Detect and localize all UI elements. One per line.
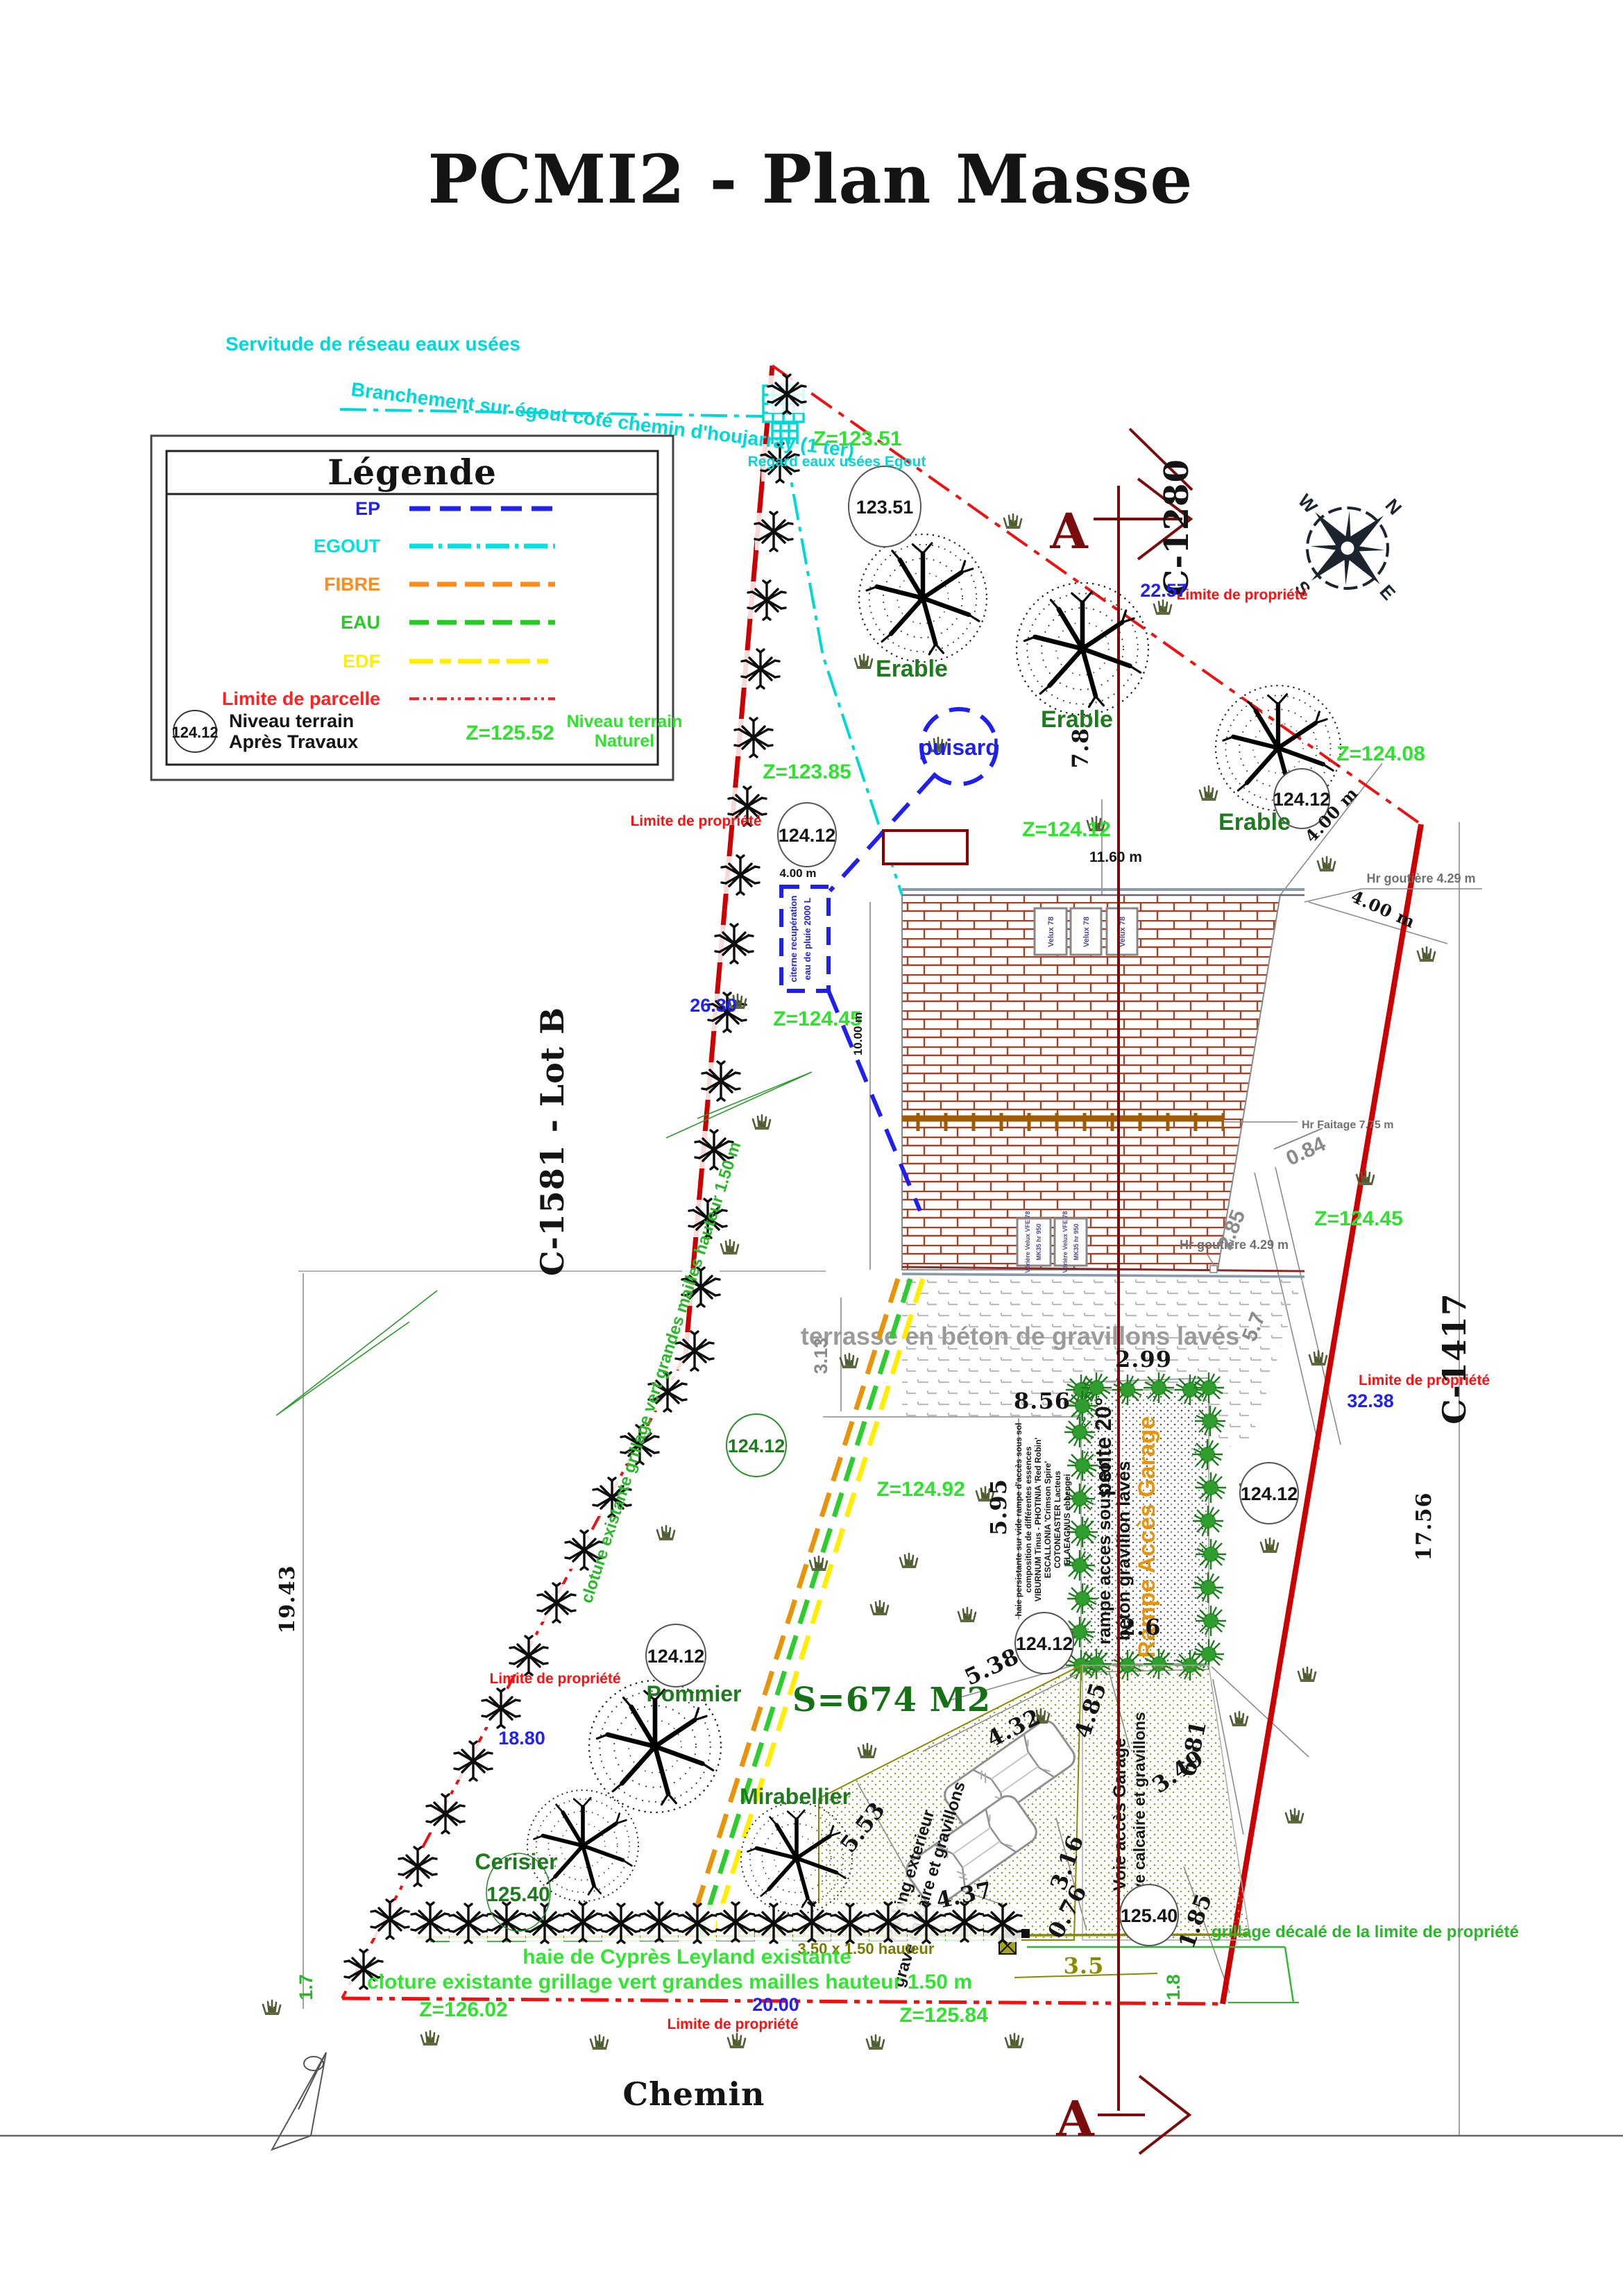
citerne-label-2: eau de pluie 2000 L: [802, 897, 813, 980]
dim-2-6: 2.6: [1121, 1614, 1162, 1640]
annex-rect: [883, 831, 967, 864]
limite-bottom: Limite de propriété: [667, 2016, 798, 2032]
page-title: PCMI2 - Plan Masse: [428, 140, 1193, 219]
regard-label: Regard eaux usées Egout: [748, 454, 926, 470]
z-124-92: Z=124.92: [876, 1478, 965, 1501]
z-124-08: Z=124.08: [1336, 742, 1425, 765]
dim-3-5: 3.5: [1064, 1953, 1105, 1979]
niveau-123-51: 123.51: [856, 497, 914, 518]
legend-niveau-l2: Après Travaux: [229, 731, 358, 752]
niveau-124-12: 124.12: [1016, 1633, 1073, 1654]
niveau-124-12-green: 124.12: [728, 1436, 785, 1456]
legend: Légende EP EGOUT FIBRE EAU EDF Limite de…: [151, 436, 682, 780]
compass-w: W: [1294, 491, 1322, 518]
legend-label: EP: [355, 498, 380, 519]
dim-4-00-a: 4.00 m: [780, 867, 817, 880]
dim-1-8: 1.8: [1163, 1974, 1184, 2000]
velux-label: Velux 78: [1082, 917, 1091, 947]
terrasse-label: terrasse en béton de gravillons lavés: [801, 1322, 1239, 1350]
erable-label-1: Erable: [876, 656, 948, 682]
compass-e: E: [1375, 581, 1399, 604]
pommier-label: Pommier: [647, 1681, 742, 1706]
hr-goutiere-top: Hr goutière 4.29 m: [1366, 871, 1475, 885]
grillage-decale-label: grillage décalé de la limite de propriét…: [1212, 1923, 1519, 1941]
haie-note-line: ELAEAGNUS ebbengei: [1062, 1474, 1072, 1565]
legend-label: Limite de parcelle: [222, 688, 380, 709]
dim-10-00: 10.00 m: [851, 1012, 865, 1055]
niveau-125-40-green: 125.40: [486, 1883, 550, 1906]
lot-c1280: C-1280: [1157, 459, 1196, 596]
dim-11-60: 11.60 m: [1089, 849, 1142, 865]
section-marker-top: A: [1049, 502, 1089, 560]
haie-note-line: VIBURNUM Tinus - PHOTINIA 'Red Robin': [1033, 1438, 1043, 1602]
dim-19-43: 19.43: [275, 1565, 300, 1634]
chemin-label: Chemin: [623, 2075, 765, 2113]
hr-faitage-label: Hr Faitage 7.75 m: [1302, 1119, 1394, 1131]
ridge-band: [902, 1113, 1224, 1131]
velux-label: Velux 78: [1047, 917, 1055, 947]
velux-windows: Velux 78 Velux 78 Velux 78: [1035, 908, 1137, 955]
dim-22-57: 22.57: [1140, 580, 1187, 601]
verriere-label: Vérière Velux VFE 78: [1024, 1211, 1031, 1273]
dim-17-56: 17.56: [1412, 1493, 1436, 1561]
mirabellier-label: Mirabellier: [740, 1784, 851, 1809]
dim-1-7: 1.7: [296, 1974, 316, 2000]
legend-naturel-l1: Niveau terrain: [567, 712, 683, 731]
erable-label-3: Erable: [1218, 809, 1291, 835]
goutiere-corner-marker: [1210, 1266, 1217, 1273]
rampe-label-1: rampe acces sous sol: [1094, 1457, 1114, 1644]
dim-5-38: 5.38: [960, 1642, 1023, 1690]
dim-2-99: 2.99: [1115, 1346, 1172, 1372]
niveau-124-12: 124.12: [779, 825, 836, 846]
z-125-84: Z=125.84: [899, 2004, 988, 2027]
z-126-02: Z=126.02: [419, 1998, 508, 2021]
z-124-12: Z=124.12: [1022, 818, 1111, 841]
site-plan: PCMI2 - Plan Masse Légende EP EGOUT FIBR…: [0, 0, 1623, 2296]
dim-5-95: 5.95: [985, 1479, 1012, 1536]
legend-niveau-value: 124.12: [171, 724, 218, 741]
niveau-125-40: 125.40: [1121, 1905, 1178, 1926]
haie-note-line: composition de différentes essences: [1023, 1446, 1033, 1592]
limite-mid-left: Limite de propriété: [489, 1671, 620, 1687]
z-124-45-left: Z=124.45: [773, 1007, 862, 1030]
limite-upper-left: Limite de propriété: [630, 813, 761, 829]
verriere-label: MK35 hr 950: [1035, 1223, 1042, 1260]
dim-18-80: 18.80: [498, 1728, 545, 1749]
compass: N E S W: [1249, 449, 1445, 645]
verriere-label: MK35 hr 950: [1073, 1223, 1080, 1260]
legend-label: EAU: [341, 612, 380, 633]
cloture-bottom-label: cloture existante grillage vert grandes …: [367, 1971, 972, 1993]
surface-label: S=674 M2: [792, 1681, 991, 1719]
section-marker-bottom: A: [1055, 2090, 1095, 2148]
legend-naturel-l2: Naturel: [595, 731, 654, 751]
dim-3-13: 3.13: [810, 1338, 831, 1375]
compass-n: N: [1381, 495, 1405, 519]
haie-note-line: COTONEASTER Lacteus: [1053, 1470, 1062, 1568]
dim-7-8: 7.8: [1067, 728, 1094, 769]
z-123-51: Z=123.51: [813, 427, 902, 450]
niveau-124-12: 124.12: [1273, 789, 1331, 810]
haie-persistante-note: haie persistante sur vide rampe d'accès …: [1014, 1423, 1072, 1617]
erable-tree-2: [1017, 583, 1148, 715]
haie-cypres-label: haie de Cyprès Leyland existante: [522, 1946, 851, 1968]
servitude-label: Servitude de réseau eaux usées: [226, 333, 520, 355]
dim-8-56: 8.56: [1014, 1388, 1071, 1414]
lot-c1417: C-1417: [1436, 1293, 1473, 1425]
dim-26-30: 26.30: [690, 995, 737, 1016]
legend-label: EGOUT: [314, 536, 381, 556]
legend-niveau-l1: Niveau terrain: [229, 711, 354, 731]
lot-c1581: C-1581 - Lot B: [534, 1007, 571, 1276]
erable-tree-1: [859, 534, 987, 662]
dim-0-84: 0.84: [1283, 1132, 1329, 1171]
niveau-124-12: 124.12: [1241, 1483, 1298, 1504]
puisard-label: puisard: [919, 735, 999, 760]
legend-label: FIBRE: [324, 574, 380, 595]
dim-20-00: 20.00: [752, 1994, 799, 2015]
dim-32-38: 32.38: [1347, 1391, 1394, 1411]
cerisier-label: Cerisier: [475, 1849, 557, 1874]
haie-note-line: haie persistante sur vide rampe d'accès …: [1014, 1423, 1023, 1617]
legend-z-value: Z=125.52: [466, 722, 554, 745]
z-123-85: Z=123.85: [763, 760, 851, 783]
z-124-45-right: Z=124.45: [1314, 1207, 1403, 1230]
cloture-left-label: cloture existante grillage vert grandes …: [577, 1139, 745, 1606]
citerne-label-1: citerne recupération: [788, 895, 799, 982]
haie-note-line: ESCALLONIA 'Crimson Spire': [1043, 1461, 1053, 1579]
legend-title: Légende: [328, 452, 497, 493]
niveau-124-12: 124.12: [647, 1646, 705, 1667]
legend-label: EDF: [343, 651, 380, 672]
verriere-label: Vérière Velux VFE 78: [1062, 1211, 1069, 1273]
